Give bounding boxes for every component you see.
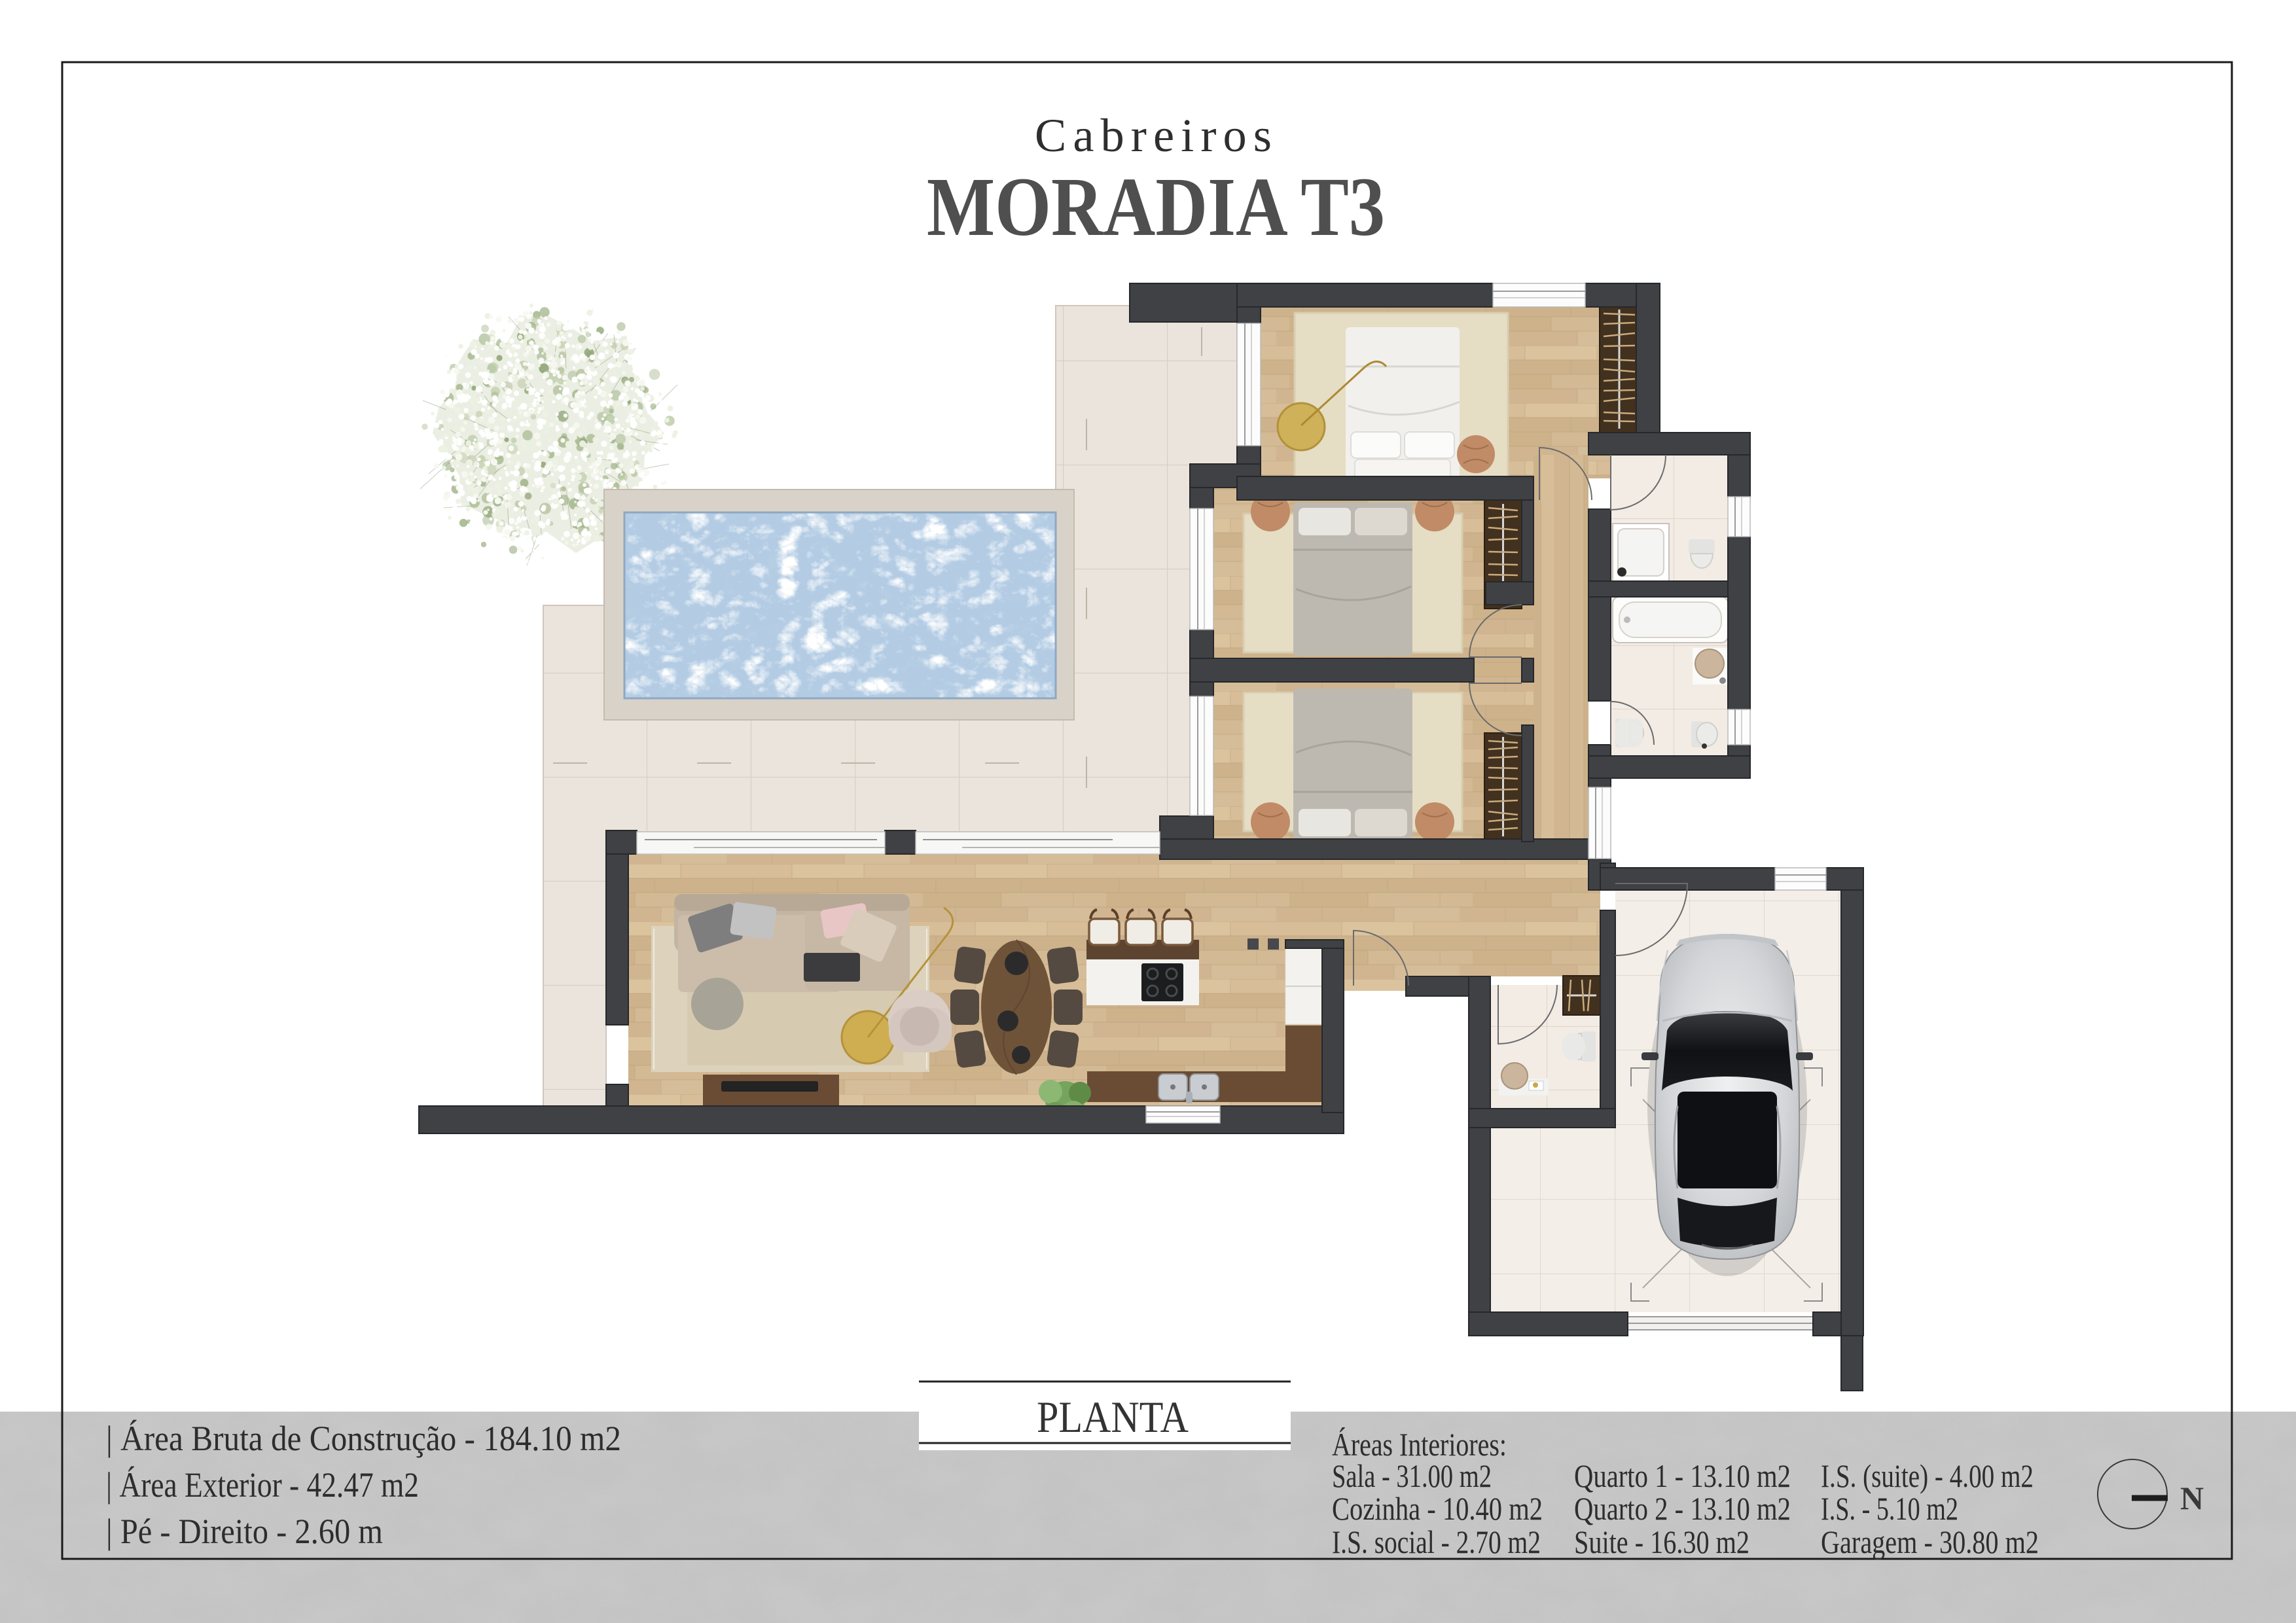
- svg-text:Cabreiros: Cabreiros: [1035, 109, 1278, 162]
- svg-text:I.S. social - 2.70 m2: I.S. social - 2.70 m2: [1332, 1524, 1541, 1560]
- svg-text:I.S. - 5.10 m2: I.S. - 5.10 m2: [1821, 1490, 1958, 1527]
- svg-text:| Área Exterior - 42.47 m2: | Área Exterior - 42.47 m2: [106, 1465, 419, 1505]
- svg-text:| Área Bruta de Construção - 1: | Área Bruta de Construção - 184.10 m2: [106, 1419, 621, 1458]
- svg-text:Cozinha - 10.40 m2: Cozinha - 10.40 m2: [1332, 1490, 1543, 1527]
- svg-text:| Pé - Direito - 2.60 m: | Pé - Direito - 2.60 m: [106, 1512, 383, 1551]
- svg-text:Quarto 2 - 13.10 m2: Quarto 2 - 13.10 m2: [1574, 1490, 1791, 1527]
- svg-text:Suite - 16.30 m2: Suite - 16.30 m2: [1574, 1524, 1749, 1560]
- svg-text:N: N: [2180, 1480, 2204, 1516]
- svg-text:Garagem - 30.80 m2: Garagem - 30.80 m2: [1821, 1524, 2039, 1560]
- svg-text:PLANTA: PLANTA: [1037, 1392, 1189, 1442]
- svg-text:MORADIA T3: MORADIA T3: [927, 160, 1385, 253]
- svg-text:Quarto 1 - 13.10 m2: Quarto 1 - 13.10 m2: [1574, 1457, 1791, 1494]
- svg-text:I.S. (suite) - 4.00 m2: I.S. (suite) - 4.00 m2: [1821, 1457, 2034, 1494]
- svg-text:Sala - 31.00 m2: Sala - 31.00 m2: [1332, 1457, 1492, 1494]
